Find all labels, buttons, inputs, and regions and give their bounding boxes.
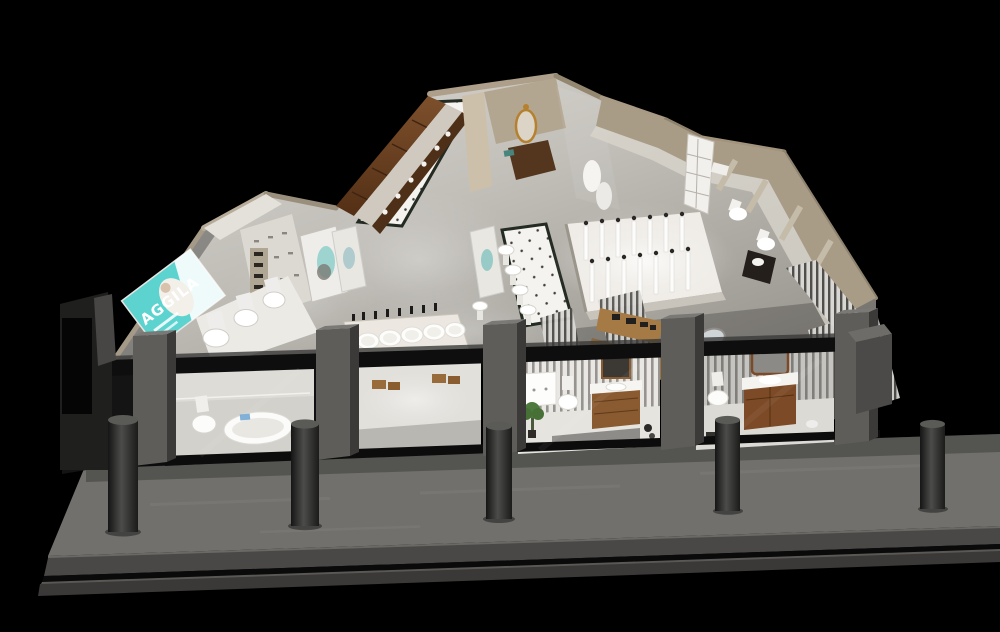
accessory (649, 433, 655, 439)
vanity-basin (759, 376, 781, 385)
pier (316, 324, 359, 460)
wood-stool (372, 380, 386, 389)
vanity-basin (752, 258, 764, 266)
white-panel-door (684, 134, 714, 214)
towel-display (596, 182, 612, 210)
vignette-stools (352, 352, 481, 456)
poster-image (481, 249, 493, 271)
lightbox-image-shadow (317, 264, 331, 280)
scene-canvas: AGGILA (0, 0, 1000, 632)
wood-stool (388, 382, 400, 390)
wood-stool (448, 376, 460, 384)
showroom-render: AGGILA (0, 0, 1000, 632)
wood-stool (432, 374, 446, 383)
pier (133, 330, 176, 466)
bollard (713, 416, 743, 515)
pier (661, 313, 704, 450)
right-end-box (856, 334, 892, 414)
bollard (483, 422, 515, 523)
bollard (918, 420, 948, 513)
bollard (105, 415, 141, 537)
poster-image (343, 247, 355, 269)
white-cabinet (522, 372, 556, 407)
ornate-gold-mirror (516, 110, 536, 142)
accessory (644, 424, 652, 432)
left-dark-window (62, 318, 92, 414)
bollard (288, 419, 322, 530)
white-stool (806, 420, 818, 428)
